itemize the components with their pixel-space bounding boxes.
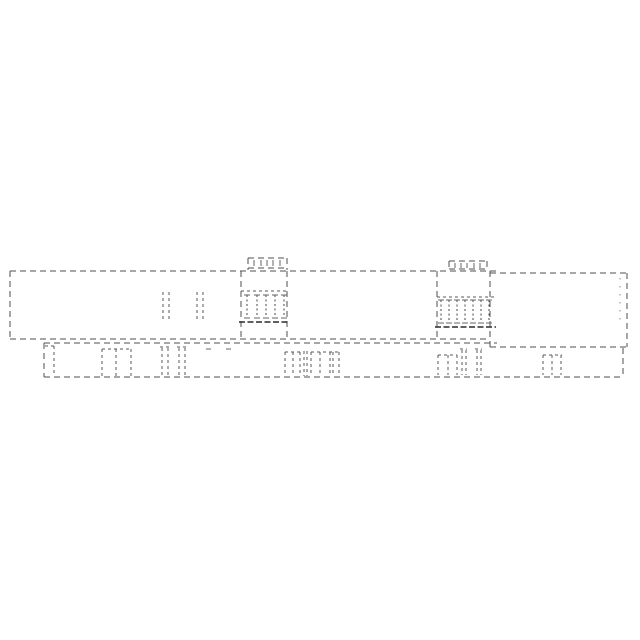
canvas [0,0,640,640]
lower-band-windows [45,346,562,376]
elevation-drawing [0,0,640,640]
elevation-svg [0,0,640,640]
tower-2 [435,261,496,347]
upper-band-windows [163,292,203,322]
upper-band-outline [10,271,627,347]
tower-1 [239,258,289,339]
